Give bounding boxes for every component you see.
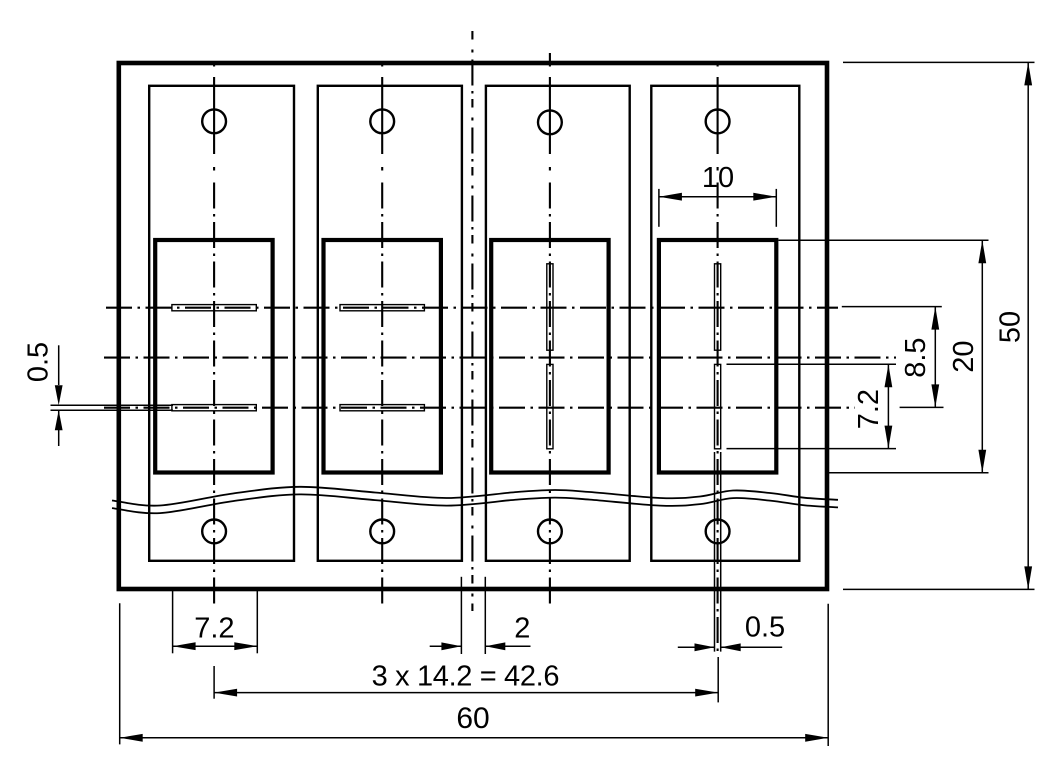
svg-text:10: 10 (702, 162, 734, 194)
svg-text:2: 2 (514, 613, 530, 645)
svg-text:50: 50 (994, 311, 1026, 343)
svg-text:7.2: 7.2 (853, 389, 885, 429)
svg-text:20: 20 (948, 340, 980, 372)
svg-text:0.5: 0.5 (745, 611, 785, 643)
svg-text:7.2: 7.2 (194, 612, 234, 644)
svg-text:60: 60 (456, 702, 489, 735)
svg-text:3 x 14.2 = 42.6: 3 x 14.2 = 42.6 (372, 661, 559, 693)
svg-text:0.5: 0.5 (22, 342, 54, 382)
svg-text:8.5: 8.5 (900, 337, 932, 377)
